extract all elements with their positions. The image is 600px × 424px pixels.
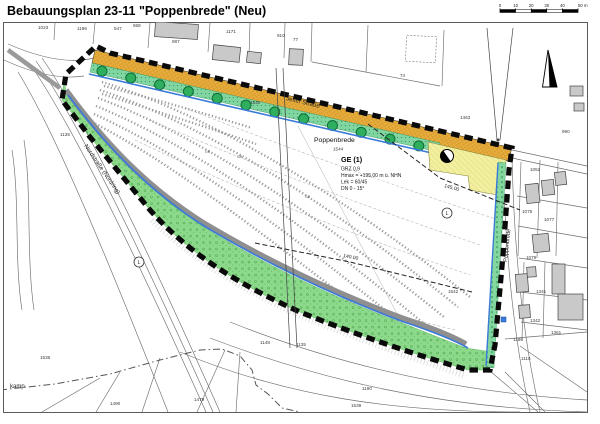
building: [527, 267, 537, 278]
parcel-number: 1052: [530, 167, 541, 172]
parcel-number: 910: [277, 33, 285, 38]
building: [515, 274, 528, 293]
parcel-number: 1490: [110, 401, 121, 406]
scale-tick-label: 0: [499, 3, 502, 8]
tree-icon: [126, 73, 136, 83]
parcel-number: 1148: [260, 340, 270, 345]
parcel-number: 1077: [544, 217, 555, 222]
parcel-number: 1540: [250, 100, 261, 105]
place-parcel-number: 1544: [333, 147, 344, 152]
parcel-number: 1135: [296, 342, 306, 347]
parcel-number: 1361: [551, 330, 562, 335]
scale-tick-label: 30: [544, 3, 549, 8]
building: [570, 86, 583, 96]
l-marker: L: [134, 257, 144, 267]
tree-icon: [97, 66, 107, 76]
building: [552, 264, 565, 294]
track-label: GR: [237, 155, 243, 159]
building: [558, 294, 583, 320]
parcel-number: 1536: [40, 355, 51, 360]
dashed-parcel-outline: [405, 35, 436, 63]
parcel-number: 1539: [351, 403, 362, 408]
zone-line: Hmax = +195,00 m ü. NHN: [341, 173, 402, 179]
zone-line: GRZ 0,9: [341, 167, 360, 173]
parcel-number: 1186: [513, 337, 523, 342]
tree-icon: [212, 93, 222, 103]
scale-segment: [516, 10, 532, 13]
building: [212, 45, 240, 63]
scale-tick-label: 10: [513, 3, 518, 8]
scale-segment: [547, 10, 563, 13]
site-plan-map: Bebauungsplan 23-11 "Poppenbrede" (Neu) …: [0, 0, 600, 424]
scale-tick-label: 40: [560, 3, 565, 8]
building: [519, 305, 531, 319]
parcel-number: 1463: [460, 115, 471, 120]
zone-title: GE (1): [341, 155, 363, 164]
l-marker-letter: L: [138, 260, 141, 266]
building: [246, 51, 261, 63]
plan-sheet: Bebauungsplan 23-11 "Poppenbrede" (Neu) …: [0, 0, 600, 424]
plan-title: Bebauungsplan 23-11 "Poppenbrede" (Neu): [7, 4, 266, 18]
buildings: [154, 22, 584, 320]
north-arrow: [543, 50, 558, 87]
parcel-number: 1342: [530, 318, 541, 323]
parcel-number: 74: [400, 73, 406, 78]
zone-line: DN 0 - 15°: [341, 186, 364, 192]
scale-tick-label: 50 m: [578, 3, 588, 8]
parcel-number: 1116: [521, 356, 531, 361]
place-label: Poppenbrede: [314, 137, 355, 144]
plan-boundary: [62, 46, 512, 370]
parcel-number: 1196: [77, 26, 87, 31]
parcel-number: 1023: [38, 25, 49, 30]
mast-symbol: [497, 139, 500, 142]
outer-path-band: [8, 50, 60, 88]
parcel-number: 1542: [448, 289, 459, 294]
parcel-number: 77: [293, 37, 299, 42]
map-content: Jexer Straße Nordstraße (Nordring) Poppe…: [0, 22, 587, 412]
parcel-number: 987: [172, 39, 180, 44]
building: [554, 171, 566, 185]
tree-icon: [183, 87, 193, 97]
parcel-number: 1479: [194, 397, 205, 402]
l-marker-letter: L: [446, 211, 449, 217]
building: [289, 49, 304, 66]
l-marker: L: [442, 208, 452, 218]
street-label-poppenbrede: Poppenbrede: [503, 229, 512, 262]
track-label: GR: [205, 150, 211, 154]
parcel-number: 1341: [536, 289, 547, 294]
parcel-number: 1075: [522, 209, 533, 214]
zone-annotation: GE (1) GRZ 0,9 Hmax = +195,00 m ü. NHN L…: [341, 155, 402, 192]
parcel-number: 568: [133, 23, 141, 28]
scale-segment: [500, 10, 516, 13]
parcel-number: 1171: [226, 29, 236, 34]
scale-segment: [562, 10, 578, 13]
blue-marker: [501, 317, 506, 322]
tree-icon: [155, 80, 165, 90]
building: [532, 233, 550, 253]
street-label-partial: kamp: [10, 384, 25, 390]
parcel-number: 1135: [60, 132, 70, 137]
parcel-number: 547: [114, 26, 122, 31]
parcel-number: 990: [562, 129, 570, 134]
building: [541, 179, 555, 195]
building: [525, 183, 540, 203]
roadside-ditch-line: [89, 74, 436, 154]
building: [574, 103, 584, 111]
scale-bar: 01020304050 m: [499, 3, 588, 13]
scale-segment: [531, 10, 547, 13]
building: [154, 22, 198, 40]
track-label: GR: [305, 195, 311, 199]
scale-tick-label: 20: [529, 3, 534, 8]
zone-line: Lek = 60/45: [341, 180, 367, 186]
parcel-number: 1079: [526, 255, 537, 260]
parcel-number: 1190: [362, 386, 372, 391]
